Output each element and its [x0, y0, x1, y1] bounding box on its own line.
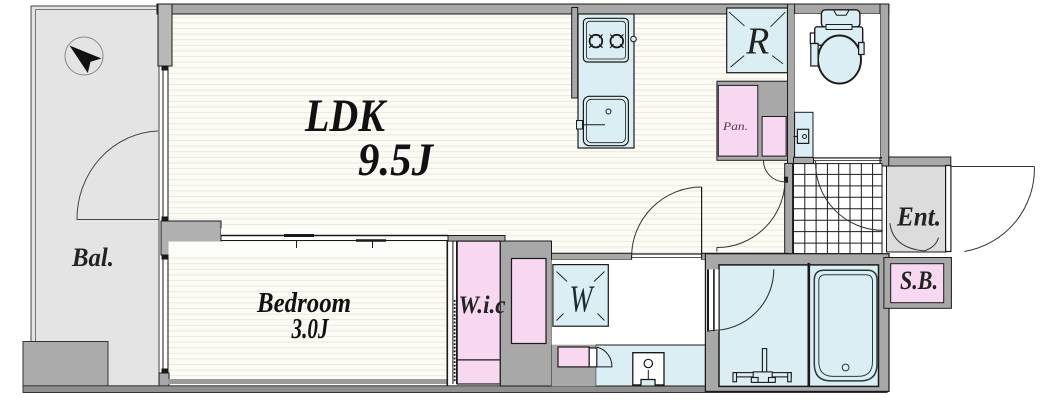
svg-text:S.B.: S.B. [900, 266, 938, 295]
svg-text:W: W [570, 278, 595, 320]
svg-text:Pan.: Pan. [722, 119, 748, 133]
svg-text:9.5J: 9.5J [358, 134, 434, 186]
svg-text:Bal.: Bal. [71, 243, 114, 272]
svg-text:R: R [745, 21, 769, 63]
svg-text:Ent.: Ent. [896, 202, 941, 232]
svg-text:3.0J: 3.0J [291, 313, 330, 345]
svg-text:W.i.c: W.i.c [459, 292, 506, 319]
